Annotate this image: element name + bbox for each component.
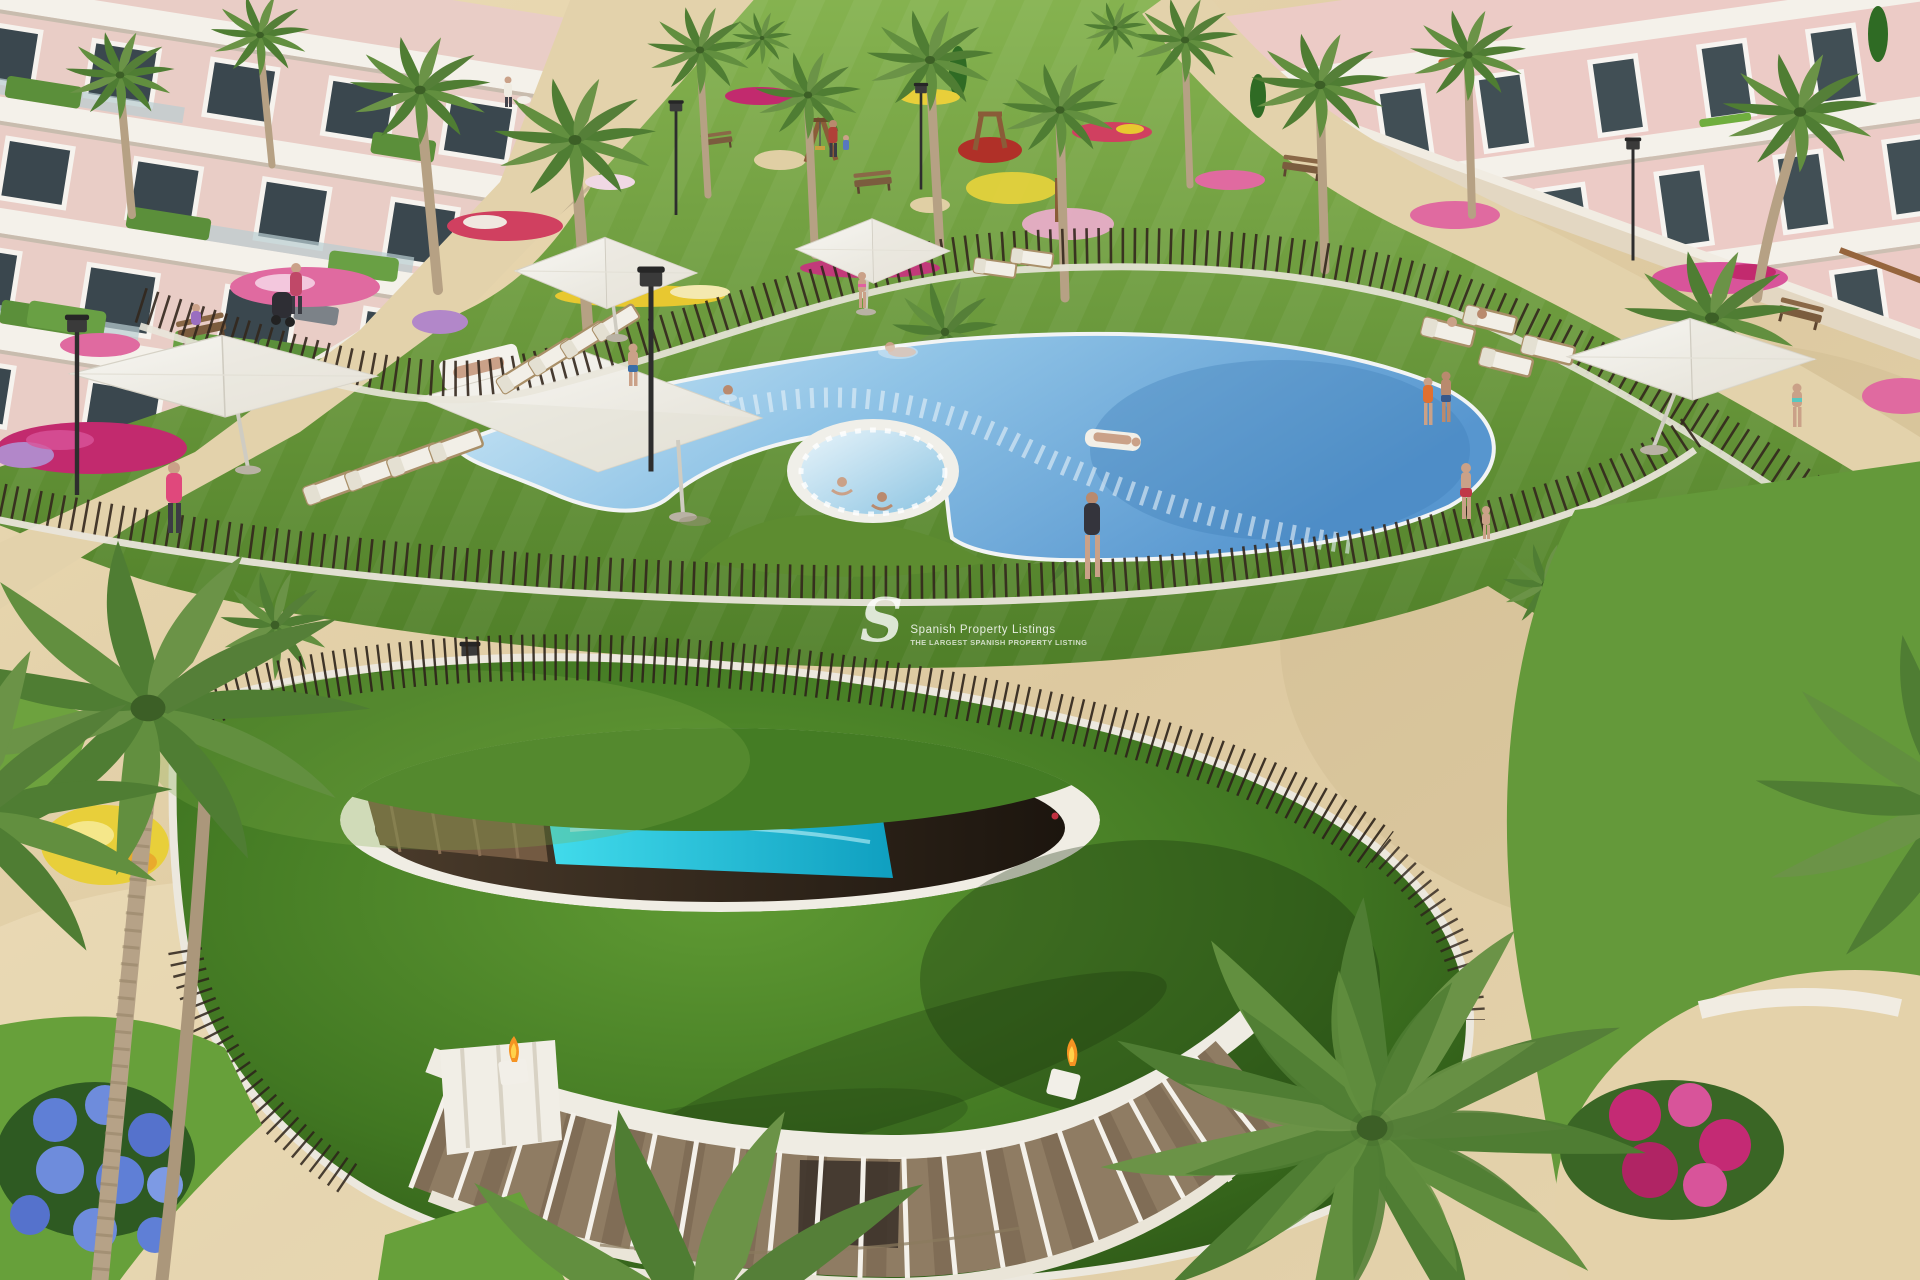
yellow-play-circle xyxy=(966,172,1058,204)
pool-deep-end xyxy=(1090,360,1470,540)
seated-person xyxy=(1447,317,1457,327)
stroller xyxy=(272,292,292,318)
spa-circle xyxy=(787,419,959,523)
render-scene: S Spanish Property Listings THE LARGEST … xyxy=(0,0,1920,1280)
playground-red-base xyxy=(958,137,1022,163)
bottom-right-gardens xyxy=(1507,460,1920,1280)
spa-bather xyxy=(837,477,847,487)
scene-canvas xyxy=(0,0,1920,1280)
spa-bather xyxy=(877,492,887,502)
seated-person xyxy=(1477,309,1487,319)
